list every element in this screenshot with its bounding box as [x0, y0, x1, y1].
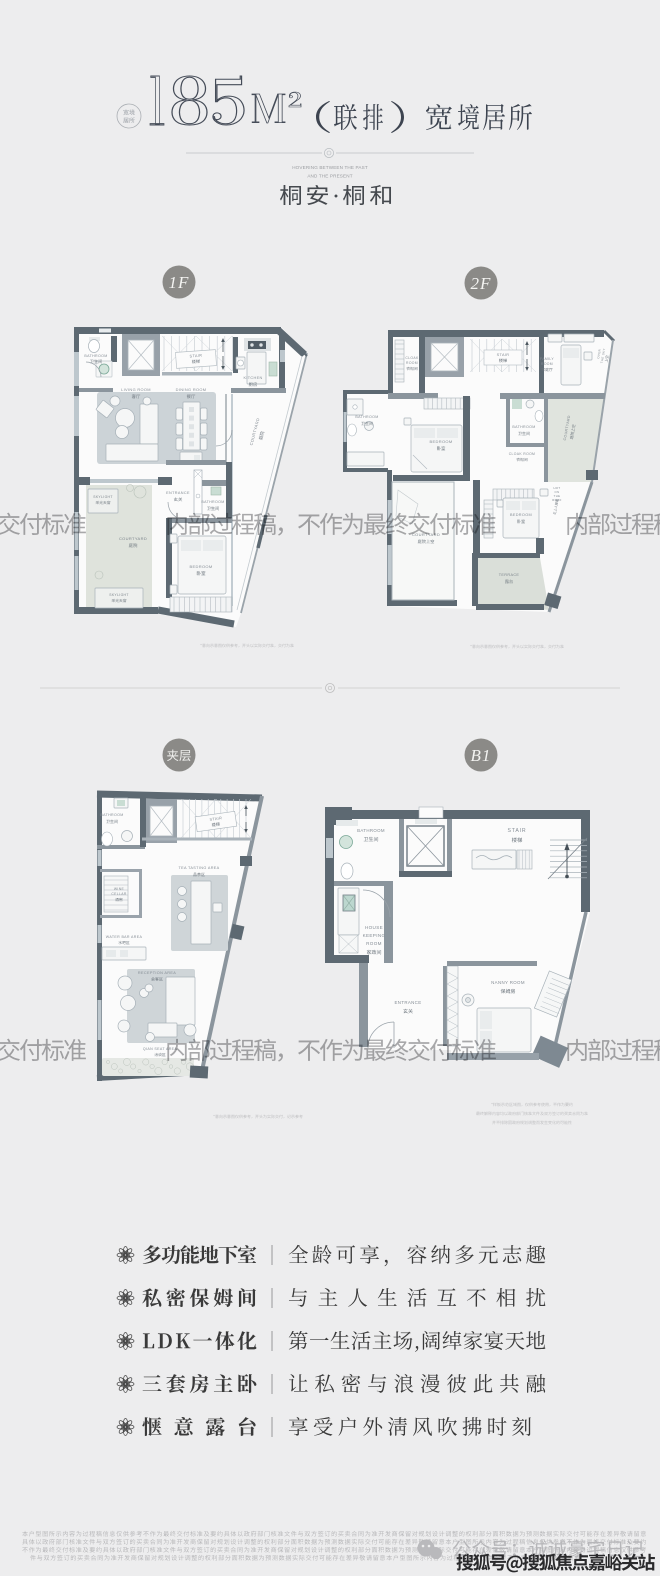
- svg-text:TERRACE: TERRACE: [499, 573, 520, 577]
- svg-text:KITCHEN: KITCHEN: [243, 376, 262, 380]
- svg-text:STAIR: STAIR: [497, 353, 510, 357]
- svg-text:HOVERING BETWEEN THE PAST: HOVERING BETWEEN THE PAST: [292, 165, 368, 170]
- svg-text:BEDROOM: BEDROOM: [189, 564, 212, 569]
- svg-text:COURTYARD: COURTYARD: [119, 536, 147, 541]
- svg-text:STAIR: STAIR: [508, 828, 527, 834]
- svg-text:ENTRANCE: ENTRANCE: [166, 491, 190, 495]
- svg-text:CLOAK: CLOAK: [405, 356, 419, 360]
- svg-text:HOUSE: HOUSE: [365, 925, 383, 930]
- svg-text:2F: 2F: [471, 274, 492, 293]
- svg-text:CLOAK ROOM: CLOAK ROOM: [509, 452, 535, 456]
- svg-text:TEA TASTING AREA: TEA TASTING AREA: [178, 866, 219, 870]
- svg-text:DINING ROOM: DINING ROOM: [176, 387, 207, 392]
- svg-text:SKYLIGHT: SKYLIGHT: [93, 495, 113, 499]
- svg-text:ROOM: ROOM: [541, 362, 553, 366]
- svg-text:AND THE PRESENT: AND THE PRESENT: [307, 174, 352, 179]
- svg-text:B1: B1: [471, 746, 492, 765]
- svg-text:CELLAR: CELLAR: [111, 892, 126, 896]
- svg-text:BATHROOM: BATHROOM: [201, 500, 224, 504]
- svg-text:BATHROOM: BATHROOM: [512, 425, 535, 429]
- svg-text:WATER BAR AREA: WATER BAR AREA: [106, 935, 143, 939]
- svg-text:RECEPTION AREA: RECEPTION AREA: [138, 971, 176, 975]
- svg-text:BEDROOM: BEDROOM: [429, 439, 452, 444]
- svg-text:WINE: WINE: [114, 887, 125, 891]
- svg-text:ROOM: ROOM: [406, 361, 418, 365]
- svg-text:ENTRANCE: ENTRANCE: [395, 1000, 422, 1005]
- svg-text:BEDROOM: BEDROOM: [510, 513, 532, 517]
- svg-text:LIVING ROOM: LIVING ROOM: [121, 387, 151, 392]
- svg-text:SKYLIGHT: SKYLIGHT: [109, 593, 129, 597]
- svg-text:ROOM: ROOM: [366, 941, 382, 946]
- svg-text:NANNY ROOM: NANNY ROOM: [491, 980, 525, 985]
- svg-text:1F: 1F: [169, 273, 190, 292]
- svg-text:FAMILY: FAMILY: [540, 357, 554, 361]
- svg-text:QIAN SEAT AREA: QIAN SEAT AREA: [143, 1047, 178, 1051]
- svg-text:KEEPING: KEEPING: [363, 933, 386, 938]
- svg-text:BATHROOM: BATHROOM: [355, 415, 378, 419]
- svg-text:BATHROOM: BATHROOM: [84, 354, 107, 358]
- svg-text:BATHROOM: BATHROOM: [100, 813, 123, 817]
- svg-text:BATHROOM: BATHROOM: [357, 828, 385, 833]
